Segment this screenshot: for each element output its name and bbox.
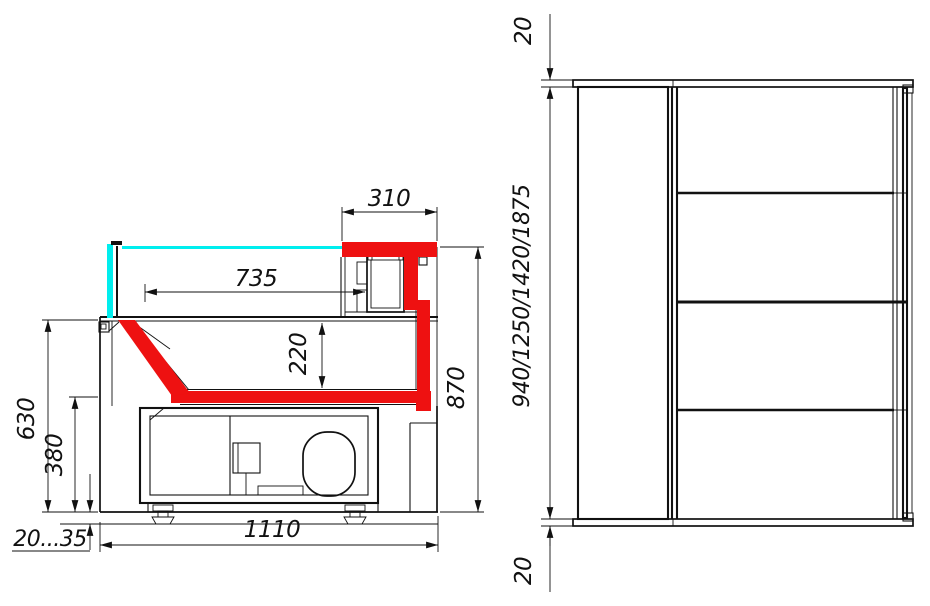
top-glass [122, 246, 342, 249]
glass-inner-pane [116, 246, 118, 318]
dim-630-label: 630 [14, 398, 40, 440]
red-highlight-profile [118, 242, 437, 411]
plan-view-dimension-labels: 20 940/1250/1420/1875 20 [510, 17, 537, 585]
dim-1110-label: 1110 [244, 517, 301, 543]
glass-top-cap [111, 241, 122, 245]
dim-top-overhang-label: 20 [511, 17, 537, 45]
technical-drawing: 310 735 220 870 630 380 20...35 1110 [0, 0, 930, 606]
front-glass [107, 244, 113, 318]
starter-box [233, 443, 260, 473]
machine-compartment [140, 408, 378, 524]
plan-view-dimensions [541, 14, 580, 592]
compressor [303, 432, 355, 496]
technical-drawing-canvas: 310 735 220 870 630 380 20...35 1110 [0, 0, 930, 606]
dim-870-label: 870 [444, 367, 470, 409]
dim-leg-adjust-label: 20...35 [13, 527, 86, 552]
glass-panels [107, 244, 342, 318]
adjustable-foot [152, 505, 174, 524]
dim-overall-lengths-label: 940/1250/1420/1875 [510, 184, 535, 407]
dim-310-label: 310 [368, 186, 410, 212]
dim-380-label: 380 [42, 434, 68, 476]
dim-220-label: 220 [286, 333, 312, 375]
dim-735-label: 735 [235, 266, 277, 292]
dim-bottom-overhang-label: 20 [511, 557, 537, 585]
side-view-dimension-labels: 310 735 220 870 630 380 20...35 1110 [13, 186, 470, 552]
plan-structure [573, 80, 913, 526]
worktop-panel [578, 87, 668, 519]
adjustable-foot [344, 505, 366, 524]
plan-view: 20 940/1250/1420/1875 20 [510, 14, 913, 592]
side-section-view: 310 735 220 870 630 380 20...35 1110 [12, 186, 484, 552]
